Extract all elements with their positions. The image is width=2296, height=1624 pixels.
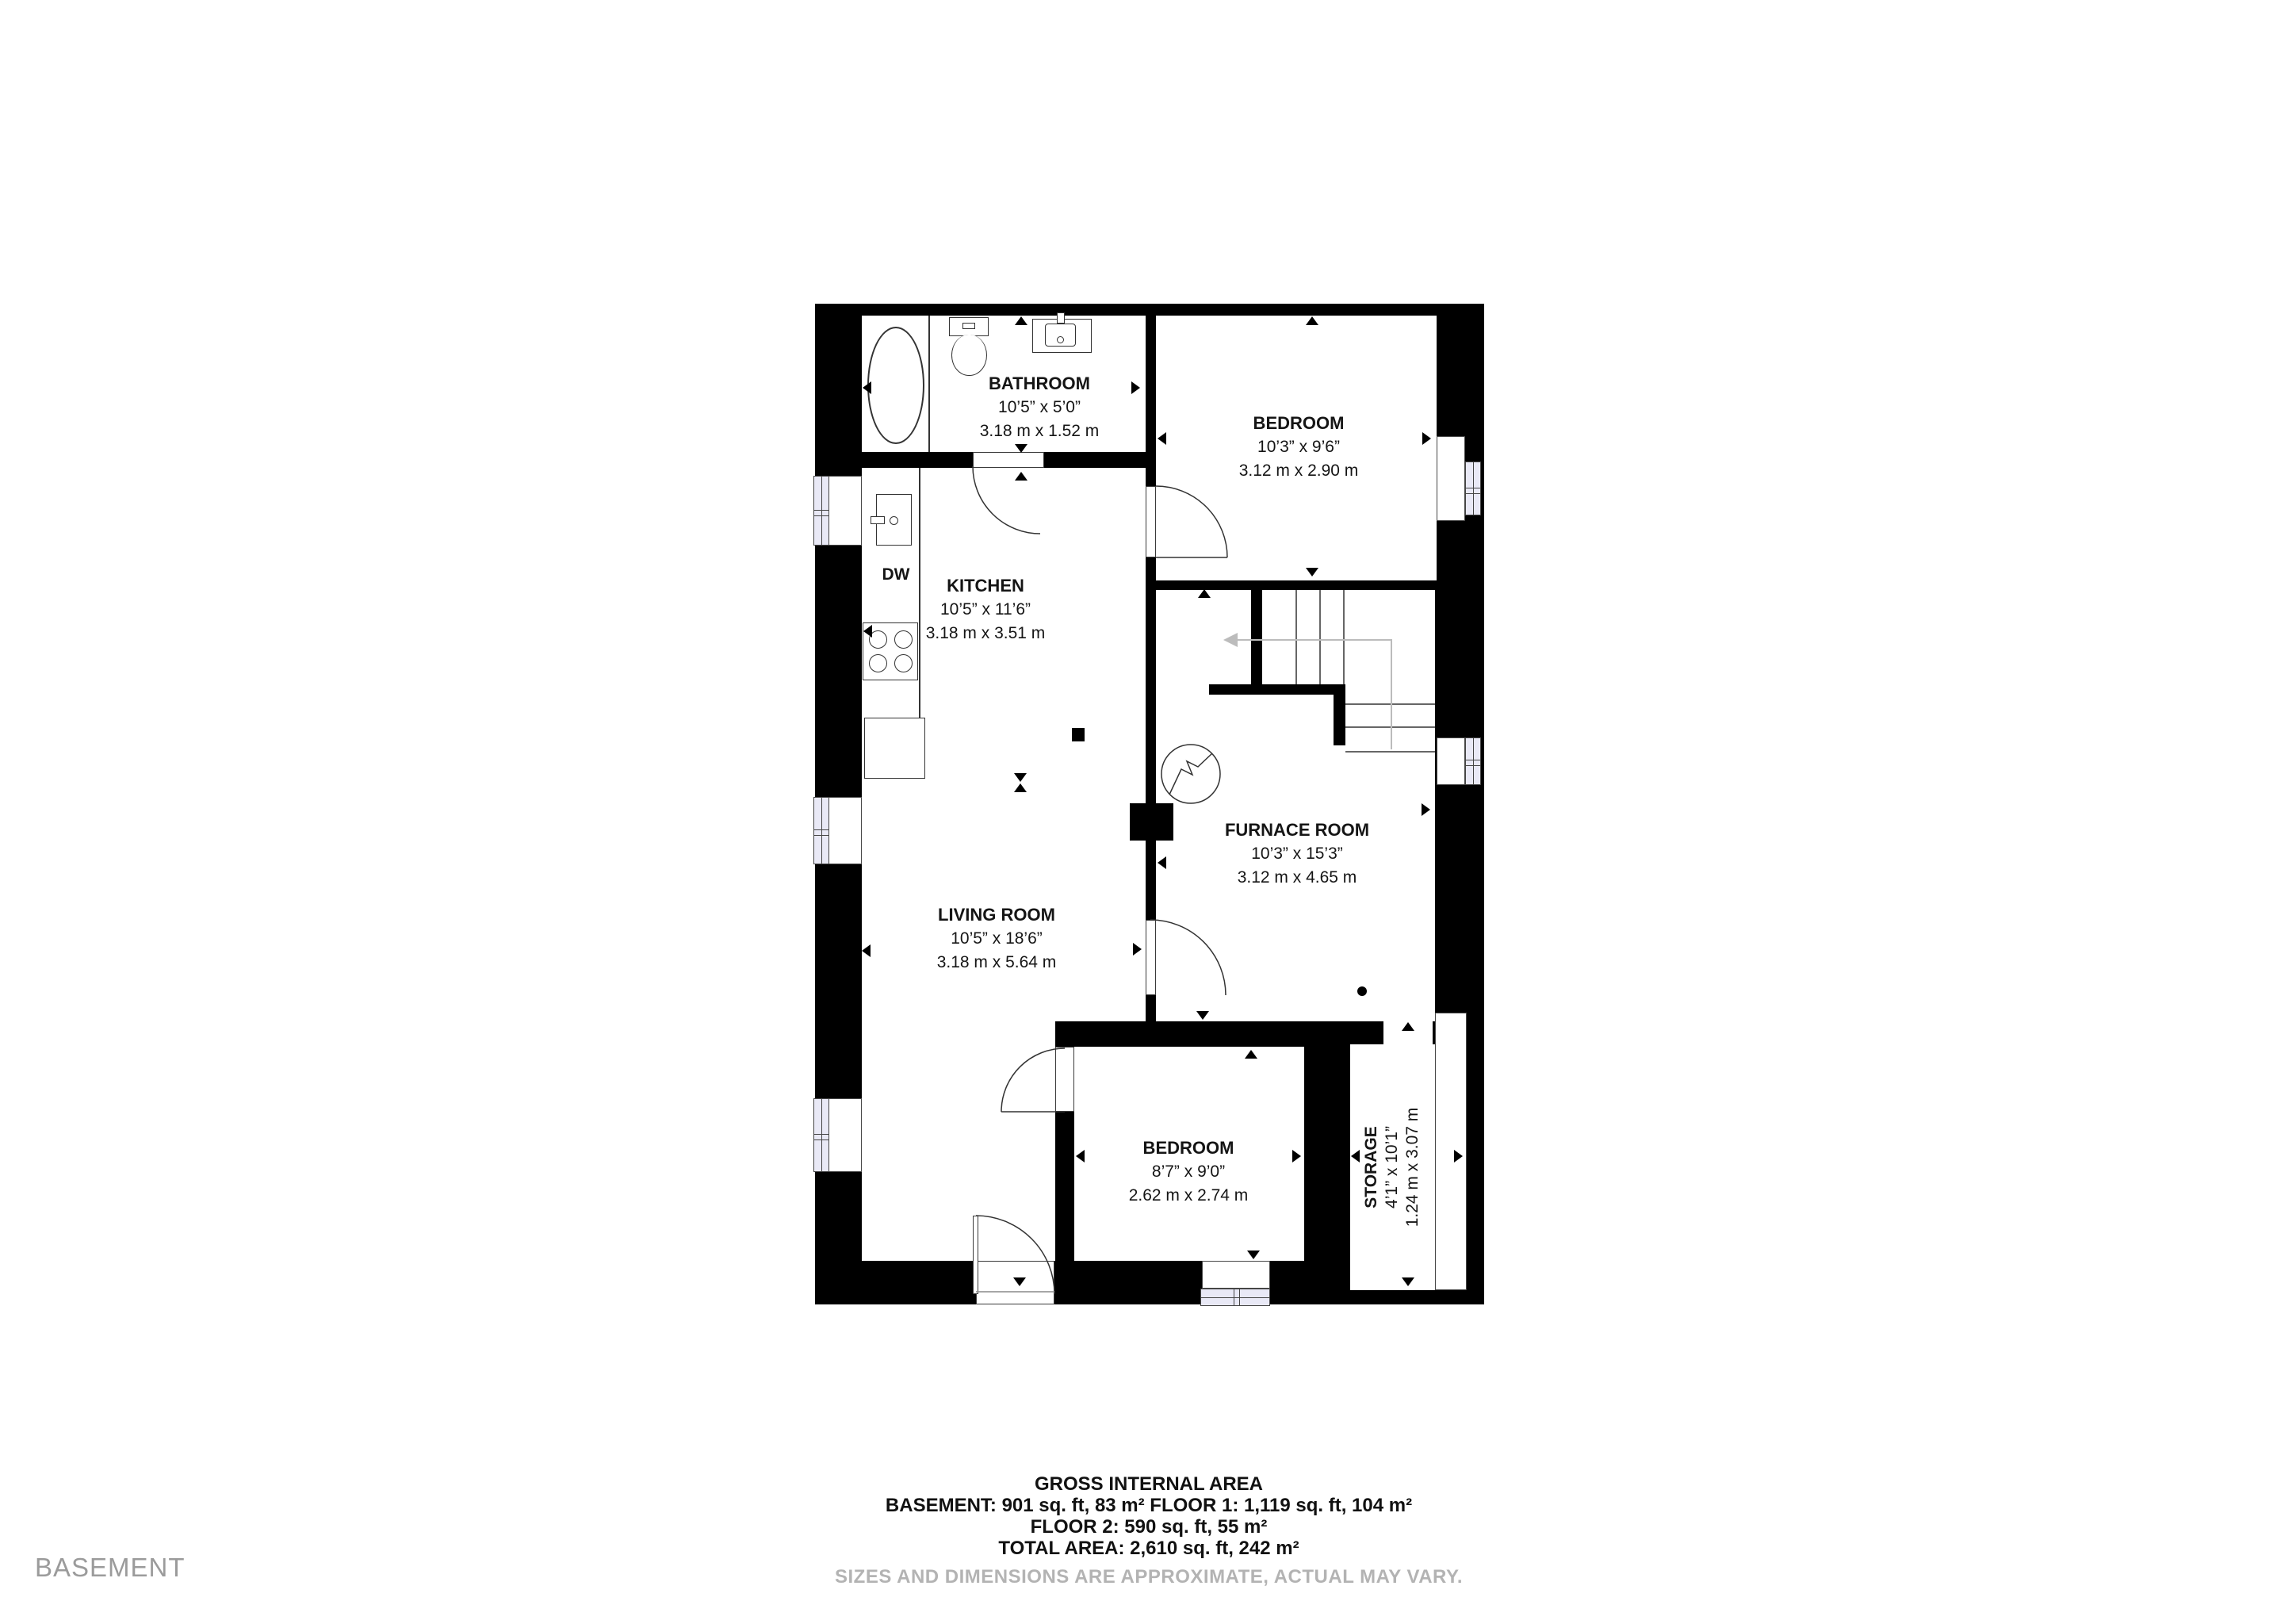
dimension-arrow-icon bbox=[1247, 1251, 1260, 1259]
label-storage: STORAGE 4’1” x 10’1” 1.24 m x 3.07 m bbox=[1361, 1108, 1423, 1228]
room-dims-metric: 3.12 m x 4.65 m bbox=[1225, 866, 1369, 890]
label-bedroom-bottom: BEDROOM 8’7” x 9’0” 2.62 m x 2.74 m bbox=[1129, 1136, 1249, 1208]
room-name: BEDROOM bbox=[1253, 413, 1345, 433]
dimension-arrow-icon bbox=[862, 944, 871, 957]
dimension-arrow-icon bbox=[1014, 773, 1027, 782]
dimension-arrow-icon bbox=[863, 625, 872, 638]
dimension-arrow-icon bbox=[1015, 316, 1027, 325]
room-dims-metric: 3.18 m x 3.51 m bbox=[926, 622, 1046, 645]
room-dims-imperial: 10’3” x 9’6” bbox=[1239, 435, 1359, 459]
gross-area-line: TOTAL AREA: 2,610 sq. ft, 242 m² bbox=[835, 1538, 1463, 1559]
stairs-upper-run bbox=[1296, 590, 1344, 684]
room-name: BATHROOM bbox=[989, 373, 1090, 393]
label-kitchen: KITCHEN 10’5” x 11’6” 3.18 m x 3.51 m bbox=[926, 574, 1046, 645]
room-name: BEDROOM bbox=[1143, 1138, 1234, 1158]
room-dims-metric: 2.62 m x 2.74 m bbox=[1129, 1184, 1249, 1208]
dimension-arrow-icon bbox=[1351, 1150, 1360, 1162]
label-bathroom: BATHROOM 10’5” x 5’0” 3.18 m x 1.52 m bbox=[980, 372, 1100, 443]
room-dims-metric: 1.24 m x 3.07 m bbox=[1402, 1108, 1423, 1228]
room-dims-metric: 3.18 m x 5.64 m bbox=[937, 951, 1057, 975]
dimension-arrow-icon bbox=[1306, 568, 1318, 576]
floorplan-page: BATHROOM 10’5” x 5’0” 3.18 m x 1.52 m BE… bbox=[0, 0, 2296, 1624]
gross-area-title: GROSS INTERNAL AREA bbox=[835, 1473, 1463, 1495]
dimension-arrow-icon bbox=[1422, 803, 1430, 816]
dimension-arrow-icon bbox=[1158, 432, 1166, 445]
disclaimer-text: SIZES AND DIMENSIONS ARE APPROXIMATE, AC… bbox=[835, 1566, 1463, 1588]
label-furnace-room: FURNACE ROOM 10’3” x 15’3” 3.12 m x 4.65… bbox=[1225, 818, 1369, 890]
dimension-arrow-icon bbox=[1454, 1150, 1463, 1162]
room-dims-imperial: 4’1” x 10’1” bbox=[1382, 1108, 1402, 1228]
door-arc bbox=[1001, 1048, 1065, 1112]
room-dims-imperial: 10’5” x 11’6” bbox=[926, 598, 1046, 622]
room-dims-imperial: 10’5” x 18’6” bbox=[937, 927, 1057, 951]
dimension-arrow-icon bbox=[1292, 1150, 1301, 1162]
dimension-arrow-icon bbox=[1133, 943, 1142, 956]
gross-area-line: FLOOR 2: 590 sq. ft, 55 m² bbox=[835, 1516, 1463, 1538]
label-living-room: LIVING ROOM 10’5” x 18’6” 3.18 m x 5.64 … bbox=[937, 903, 1057, 975]
dimension-arrow-icon bbox=[1198, 589, 1211, 598]
room-dims-imperial: 8’7” x 9’0” bbox=[1129, 1160, 1249, 1184]
dimension-arrow-icon bbox=[1015, 444, 1027, 453]
room-dims-imperial: 10’3” x 15’3” bbox=[1225, 842, 1369, 866]
room-dims-metric: 3.12 m x 2.90 m bbox=[1239, 459, 1359, 483]
dishwasher-label: DW bbox=[882, 565, 910, 584]
furnace-icon bbox=[1161, 745, 1220, 803]
dimension-arrow-icon bbox=[1014, 783, 1027, 792]
stair-direction-arrowhead bbox=[1223, 633, 1238, 647]
dimension-arrow-icon bbox=[1196, 1011, 1209, 1020]
dimension-arrow-icon bbox=[1422, 432, 1431, 445]
room-name: STORAGE bbox=[1362, 1126, 1380, 1208]
plan-canvas: BATHROOM 10’5” x 5’0” 3.18 m x 1.52 m BE… bbox=[815, 304, 1484, 1304]
gross-area-line: BASEMENT: 901 sq. ft, 83 m² FLOOR 1: 1,1… bbox=[835, 1495, 1463, 1516]
dimension-arrow-icon bbox=[1158, 856, 1166, 869]
room-name: FURNACE ROOM bbox=[1225, 820, 1369, 840]
dimension-arrow-icon bbox=[1402, 1277, 1414, 1286]
room-name: LIVING ROOM bbox=[938, 905, 1055, 925]
gross-area-summary: GROSS INTERNAL AREA BASEMENT: 901 sq. ft… bbox=[835, 1473, 1463, 1588]
stair-direction-arrow bbox=[1236, 640, 1391, 749]
room-name: KITCHEN bbox=[947, 576, 1024, 596]
dimension-arrow-icon bbox=[1076, 1150, 1085, 1162]
dimension-arrow-icon bbox=[863, 381, 871, 394]
dimension-arrow-icon bbox=[1015, 472, 1027, 481]
label-bedroom-top: BEDROOM 10’3” x 9’6” 3.12 m x 2.90 m bbox=[1239, 412, 1359, 483]
door-arc bbox=[1150, 920, 1226, 995]
door-arc bbox=[973, 466, 1040, 534]
dimension-arrow-icon bbox=[1402, 1022, 1414, 1031]
floor-title: BASEMENT bbox=[35, 1553, 186, 1583]
stairs-landing bbox=[1345, 704, 1435, 752]
dimension-arrow-icon bbox=[1306, 316, 1318, 325]
dimension-arrow-icon bbox=[1131, 381, 1140, 394]
room-dims-metric: 3.18 m x 1.52 m bbox=[980, 419, 1100, 443]
dimension-arrow-icon bbox=[1013, 1277, 1026, 1286]
door-arc bbox=[1156, 486, 1227, 557]
dimension-arrow-icon bbox=[1245, 1050, 1257, 1059]
room-dims-imperial: 10’5” x 5’0” bbox=[980, 396, 1100, 419]
